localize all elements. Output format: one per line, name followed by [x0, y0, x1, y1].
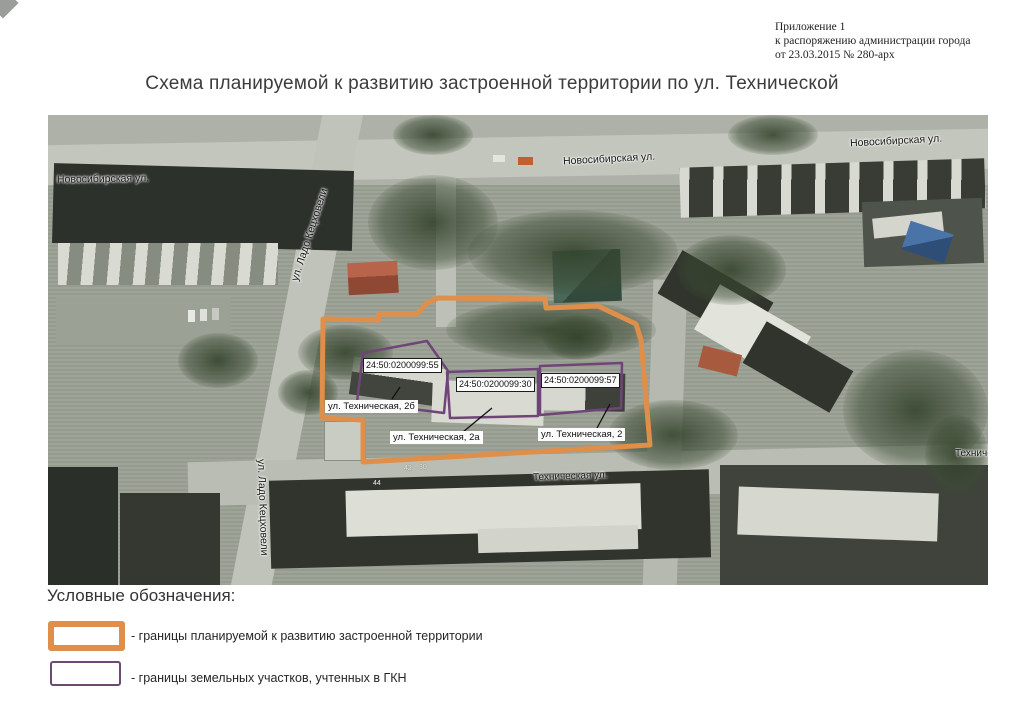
appendix-line-1: Приложение 1 — [775, 20, 971, 34]
scan-artifact — [0, 0, 19, 19]
house-number-44: 44 — [373, 480, 381, 487]
appendix-note: Приложение 1 к распоряжению администраци… — [775, 20, 971, 62]
territory-boundary-swatch — [48, 621, 125, 651]
legend-item-territory: - границы планируемой к развитию застрое… — [131, 629, 483, 643]
parcel-boundary-57 — [540, 363, 622, 415]
house-number-30: 30 — [419, 464, 427, 471]
boundary-overlay — [48, 115, 988, 585]
legend-title: Условные обозначения: — [47, 586, 235, 606]
street-label-clipped-text: Техническая ул. — [955, 448, 988, 459]
address-label-2b: ул. Техническая, 2б — [325, 400, 418, 413]
leader-line-2a — [463, 408, 492, 432]
leader-line-2b — [392, 387, 400, 399]
street-label-novosibirskaya-left: Новосибирская ул. — [57, 172, 149, 186]
house-number-42: 42 — [404, 465, 412, 472]
cadastral-label-30: 24:50:0200099:30 — [456, 377, 535, 392]
cadastral-label-55: 24:50:0200099:55 — [363, 358, 442, 373]
address-label-2: ул. Техническая, 2 — [538, 428, 625, 441]
address-label-2a: ул. Техническая, 2а — [390, 431, 483, 444]
leader-line-2 — [597, 404, 610, 428]
page-title: Схема планируемой к развитию застроенной… — [145, 73, 838, 95]
cadastral-label-57: 24:50:0200099:57 — [541, 373, 620, 388]
street-label-tekhnicheskaya-right: Техническая ул. — [955, 448, 988, 459]
parcel-boundary-swatch — [50, 661, 121, 686]
legend-item-parcels: - границы земельных участков, учтенных в… — [131, 671, 407, 685]
satellite-map: 24:50:0200099:55 24:50:0200099:30 24:50:… — [48, 115, 988, 585]
appendix-line-2: к распоряжению администрации города — [775, 34, 971, 48]
appendix-line-3: от 23.03.2015 № 280-арх — [775, 48, 971, 62]
